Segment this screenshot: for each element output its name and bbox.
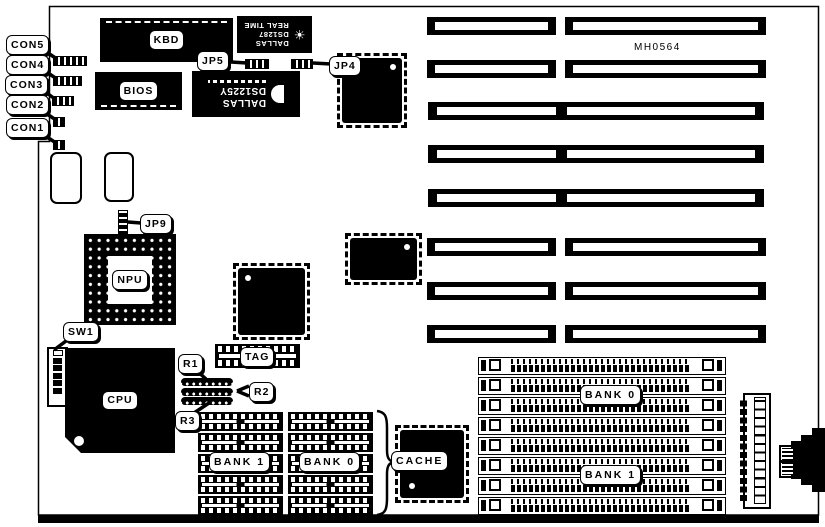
simm-bank0-label: BANK 0 xyxy=(580,385,641,405)
callout-tails xyxy=(0,0,825,527)
callout-tail-r2b xyxy=(237,391,249,396)
callout-r3: R3 xyxy=(175,411,200,431)
cache-label: CACHE xyxy=(391,451,448,471)
chip-label-tag: TAG xyxy=(240,347,274,367)
callout-con5: CON5 xyxy=(6,35,49,55)
dram-bank1-label: BANK 1 xyxy=(209,452,270,472)
callout-jp4: JP4 xyxy=(329,56,361,76)
callout-con3: CON3 xyxy=(5,75,48,95)
motherboard-diagram: CON5 CON4 CON3 CON2 CON1 KBD BIOS ☀ DALL… xyxy=(0,0,825,527)
simm-bank1-label: BANK 1 xyxy=(580,465,641,485)
callout-jp5: JP5 xyxy=(197,51,229,71)
callout-r2: R2 xyxy=(249,382,274,402)
callout-jp9: JP9 xyxy=(140,214,172,234)
callout-sw1: SW1 xyxy=(63,322,99,342)
callout-con1: CON1 xyxy=(6,118,49,138)
callout-con4: CON4 xyxy=(6,55,49,75)
dram-bank0-label: BANK 0 xyxy=(299,452,360,472)
callout-tail-jp5 xyxy=(231,62,247,63)
callout-r1: R1 xyxy=(178,354,203,374)
callout-con2: CON2 xyxy=(6,95,49,115)
